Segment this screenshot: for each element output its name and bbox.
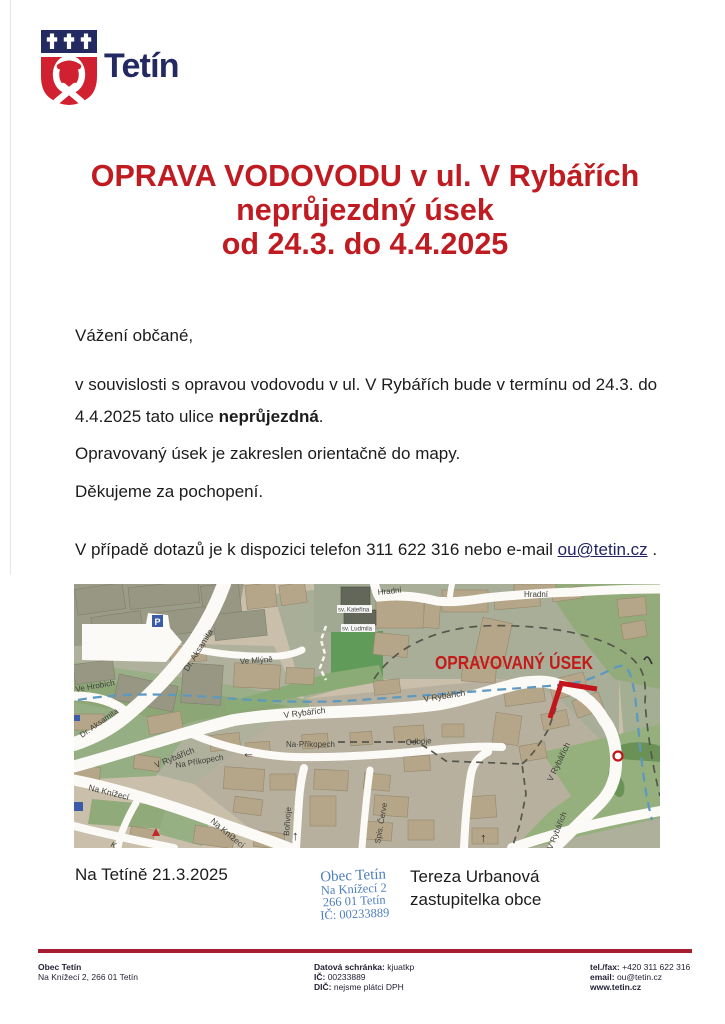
svg-text:OPRAVOVANÝ ÚSEK: OPRAVOVANÝ ÚSEK <box>435 652 593 673</box>
